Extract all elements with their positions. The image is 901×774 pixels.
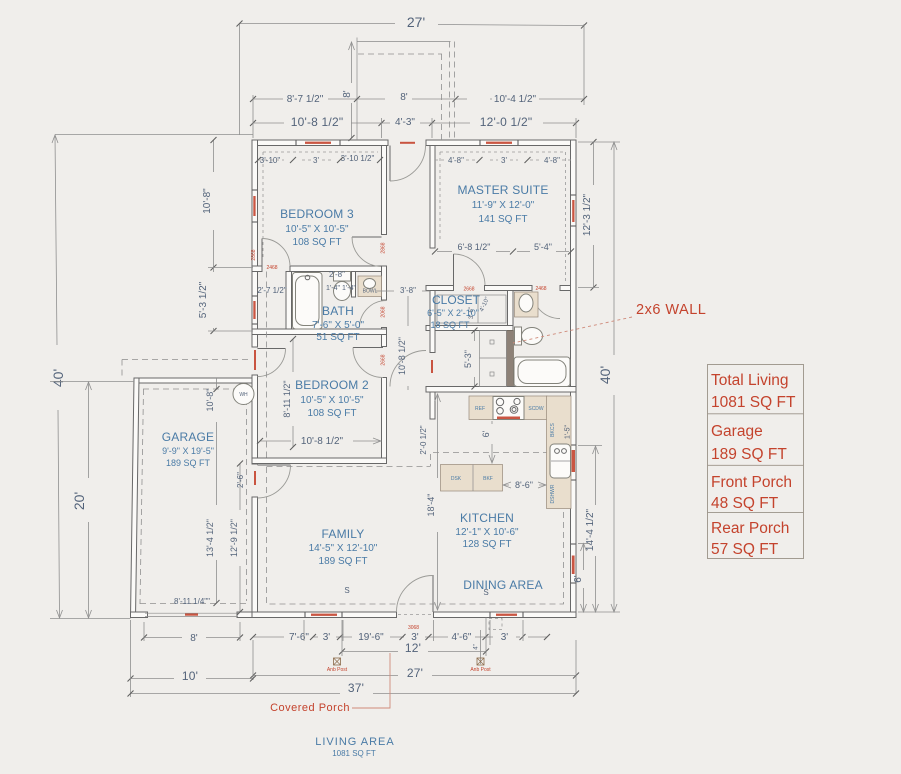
svg-text:8'-6": 8'-6" (515, 480, 533, 490)
svg-text:10'-4 1/2": 10'-4 1/2" (494, 94, 537, 105)
svg-text:8'-11 1/4"": 8'-11 1/4"" (174, 597, 210, 606)
svg-text:11'-9" X 12'-0": 11'-9" X 12'-0" (472, 200, 535, 211)
svg-text:48 SQ FT: 48 SQ FT (711, 495, 779, 512)
svg-text:7'-6" X 5'-0": 7'-6" X 5'-0" (312, 320, 365, 331)
svg-text:8': 8' (190, 633, 198, 644)
svg-text:3': 3' (501, 632, 509, 643)
svg-text:2868: 2868 (381, 242, 387, 253)
svg-text:189 SQ FT: 189 SQ FT (319, 556, 368, 567)
svg-text:6': 6' (573, 575, 584, 583)
svg-text:SCDW: SCDW (528, 406, 544, 412)
svg-text:189 SQ FT: 189 SQ FT (166, 458, 211, 468)
svg-text:6'-8 1/2": 6'-8 1/2" (458, 242, 491, 252)
svg-text:40': 40' (50, 369, 66, 387)
svg-text:BKF: BKF (483, 476, 493, 482)
svg-text:3': 3' (313, 156, 319, 165)
svg-text:5'-3": 5'-3" (463, 350, 473, 368)
svg-text:4'-6": 4'-6" (452, 632, 472, 643)
svg-text:37': 37' (348, 681, 364, 695)
svg-text:1081 SQ FT: 1081 SQ FT (711, 394, 796, 411)
svg-text:3'-10 1/2": 3'-10 1/2" (341, 154, 375, 163)
svg-text:10'-8 1/2": 10'-8 1/2" (301, 436, 344, 447)
svg-text:12'-3 1/2": 12'-3 1/2" (582, 193, 593, 236)
svg-text:13'-4 1/2": 13'-4 1/2" (205, 519, 215, 557)
svg-text:10'-8": 10'-8" (202, 188, 213, 214)
svg-text:8'-11 1/2": 8'-11 1/2" (282, 380, 292, 417)
svg-text:141 SQ FT: 141 SQ FT (479, 214, 528, 225)
svg-text:12'-0 1/2": 12'-0 1/2" (480, 115, 533, 129)
svg-text:5'-4": 5'-4" (534, 242, 552, 252)
svg-text:19'-6": 19'-6" (358, 632, 384, 643)
svg-text:14'-5" X 12'-10": 14'-5" X 12'-10" (309, 543, 378, 554)
svg-text:8': 8' (400, 92, 408, 103)
svg-text:2'-8": 2'-8" (329, 270, 345, 279)
svg-text:Front Porch: Front Porch (711, 474, 792, 491)
svg-text:BKCS: BKCS (550, 423, 556, 437)
svg-text:REF: REF (475, 406, 485, 412)
svg-text:20': 20' (71, 492, 87, 510)
svg-text:KITCHEN: KITCHEN (460, 511, 514, 525)
svg-text:9'-9" X 19'-5": 9'-9" X 19'-5" (162, 446, 214, 456)
svg-text:BEDROOM 3: BEDROOM 3 (280, 207, 354, 221)
svg-text:BEDROOM 2: BEDROOM 2 (295, 378, 369, 392)
svg-text:1081 SQ FT: 1081 SQ FT (332, 749, 376, 758)
svg-text:108 SQ FT: 108 SQ FT (293, 237, 342, 248)
svg-text:Covered Porch: Covered Porch (270, 702, 350, 714)
svg-text:BATH: BATH (322, 304, 354, 318)
svg-text:2'-6": 2'-6" (236, 472, 245, 488)
svg-text:4": 4" (474, 644, 480, 649)
svg-text:10'-8 1/2": 10'-8 1/2" (291, 115, 344, 129)
svg-text:18'-4": 18'-4" (426, 494, 436, 517)
svg-text:18 SQ FT: 18 SQ FT (430, 320, 470, 330)
svg-text:2868: 2868 (251, 249, 257, 260)
svg-text:3': 3' (501, 156, 507, 165)
svg-text:12'-1" X 10'-6": 12'-1" X 10'-6" (455, 527, 519, 538)
svg-text:27': 27' (407, 666, 423, 680)
svg-text:12'-9 1/2": 12'-9 1/2" (229, 519, 239, 557)
svg-text:Garage: Garage (711, 423, 763, 440)
svg-text:DINING AREA: DINING AREA (463, 578, 543, 592)
svg-text:6'-5" X 2'-10": 6'-5" X 2'-10" (427, 308, 479, 318)
svg-text:2068: 2068 (381, 306, 387, 317)
svg-text:3'-10": 3'-10" (260, 156, 281, 165)
svg-text:10'-8 1/2": 10'-8 1/2" (397, 337, 407, 375)
svg-text:4'-3": 4'-3" (395, 117, 415, 128)
svg-text:5'-3 1/2": 5'-3 1/2" (198, 281, 209, 318)
svg-text:4'-8": 4'-8" (448, 156, 464, 165)
svg-text:WH: WH (239, 392, 248, 398)
svg-text:108 SQ FT: 108 SQ FT (308, 408, 357, 419)
svg-text:Anb Post: Anb Post (327, 667, 348, 673)
svg-text:10': 10' (182, 669, 198, 683)
svg-text:2668: 2668 (381, 354, 387, 365)
svg-text:BOWL: BOWL (363, 289, 378, 295)
svg-text:3068: 3068 (408, 625, 419, 631)
svg-text:8'-7 1/2": 8'-7 1/2" (287, 94, 324, 105)
svg-text:FAMILY: FAMILY (322, 527, 365, 541)
svg-text:2468: 2468 (266, 265, 277, 271)
svg-text:LIVING AREA: LIVING AREA (315, 736, 394, 748)
svg-text:51 SQ FT: 51 SQ FT (316, 332, 359, 343)
svg-text:3': 3' (323, 632, 331, 643)
svg-text:3'-8": 3'-8" (400, 286, 416, 295)
svg-text:128 SQ FT: 128 SQ FT (463, 539, 512, 550)
svg-text:DSHWR: DSHWR (550, 484, 556, 503)
svg-text:1'-4": 1'-4" (326, 285, 340, 292)
svg-text:57 SQ FT: 57 SQ FT (711, 541, 779, 558)
svg-text:GARAGE: GARAGE (162, 430, 215, 444)
svg-text:8': 8' (342, 90, 353, 98)
svg-text:40': 40' (597, 366, 613, 384)
svg-text:4'-8": 4'-8" (544, 156, 560, 165)
svg-text:1'-5": 1'-5" (565, 425, 572, 439)
svg-text:Anb Post: Anb Post (470, 667, 491, 673)
svg-text:12': 12' (405, 641, 421, 655)
svg-text:6': 6' (481, 430, 491, 437)
svg-text:10'-5" X 10'-5": 10'-5" X 10'-5" (285, 224, 349, 235)
svg-text:2668: 2668 (463, 287, 474, 293)
svg-text:CLOSET: CLOSET (432, 293, 481, 307)
svg-text:2x6 WALL: 2x6 WALL (636, 302, 706, 318)
svg-text:2'-7 1/2": 2'-7 1/2" (257, 286, 286, 295)
svg-text:10'-5" X 10'-5": 10'-5" X 10'-5" (300, 395, 364, 406)
svg-text:Total Living: Total Living (711, 372, 789, 389)
svg-text:189 SQ FT: 189 SQ FT (711, 446, 787, 463)
svg-text:7'-6": 7'-6" (289, 632, 309, 643)
svg-text:2'-0 1/2": 2'-0 1/2" (419, 425, 428, 454)
svg-text:S: S (344, 586, 349, 595)
svg-text:1'-4": 1'-4" (342, 285, 356, 292)
svg-text:27': 27' (407, 14, 425, 30)
svg-text:14'-4 1/2": 14'-4 1/2" (585, 508, 596, 551)
svg-text:2468: 2468 (535, 286, 546, 292)
svg-text:DSK: DSK (451, 476, 462, 482)
svg-text:Rear Porch: Rear Porch (711, 520, 789, 537)
svg-text:MASTER SUITE: MASTER SUITE (457, 183, 548, 197)
